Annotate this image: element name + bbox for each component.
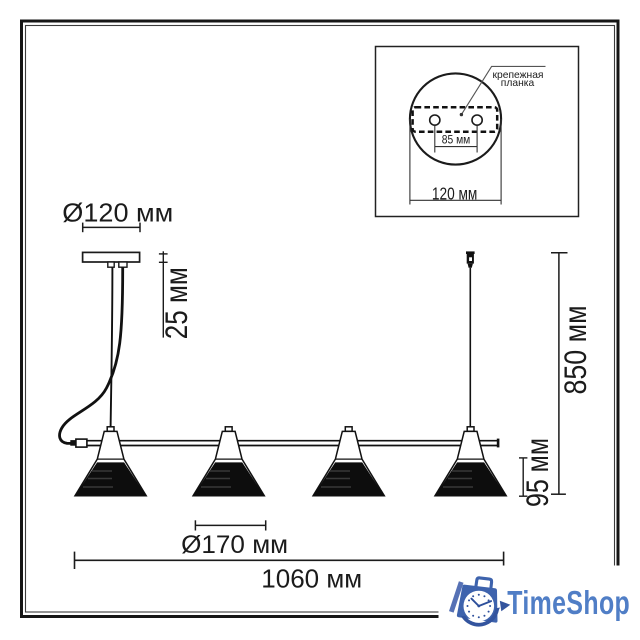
svg-text:1060 мм: 1060 мм (261, 563, 362, 593)
svg-text:120 мм: 120 мм (432, 183, 478, 203)
svg-text:85 мм: 85 мм (442, 132, 471, 146)
svg-text:95 мм: 95 мм (519, 438, 555, 507)
svg-text:25 мм: 25 мм (158, 267, 194, 339)
svg-text:Ø120 мм: Ø120 мм (62, 197, 173, 227)
svg-text:TimeShop: TimeShop (507, 586, 630, 622)
svg-text:Ø170 мм: Ø170 мм (181, 531, 288, 559)
svg-text:850 мм: 850 мм (557, 306, 593, 395)
